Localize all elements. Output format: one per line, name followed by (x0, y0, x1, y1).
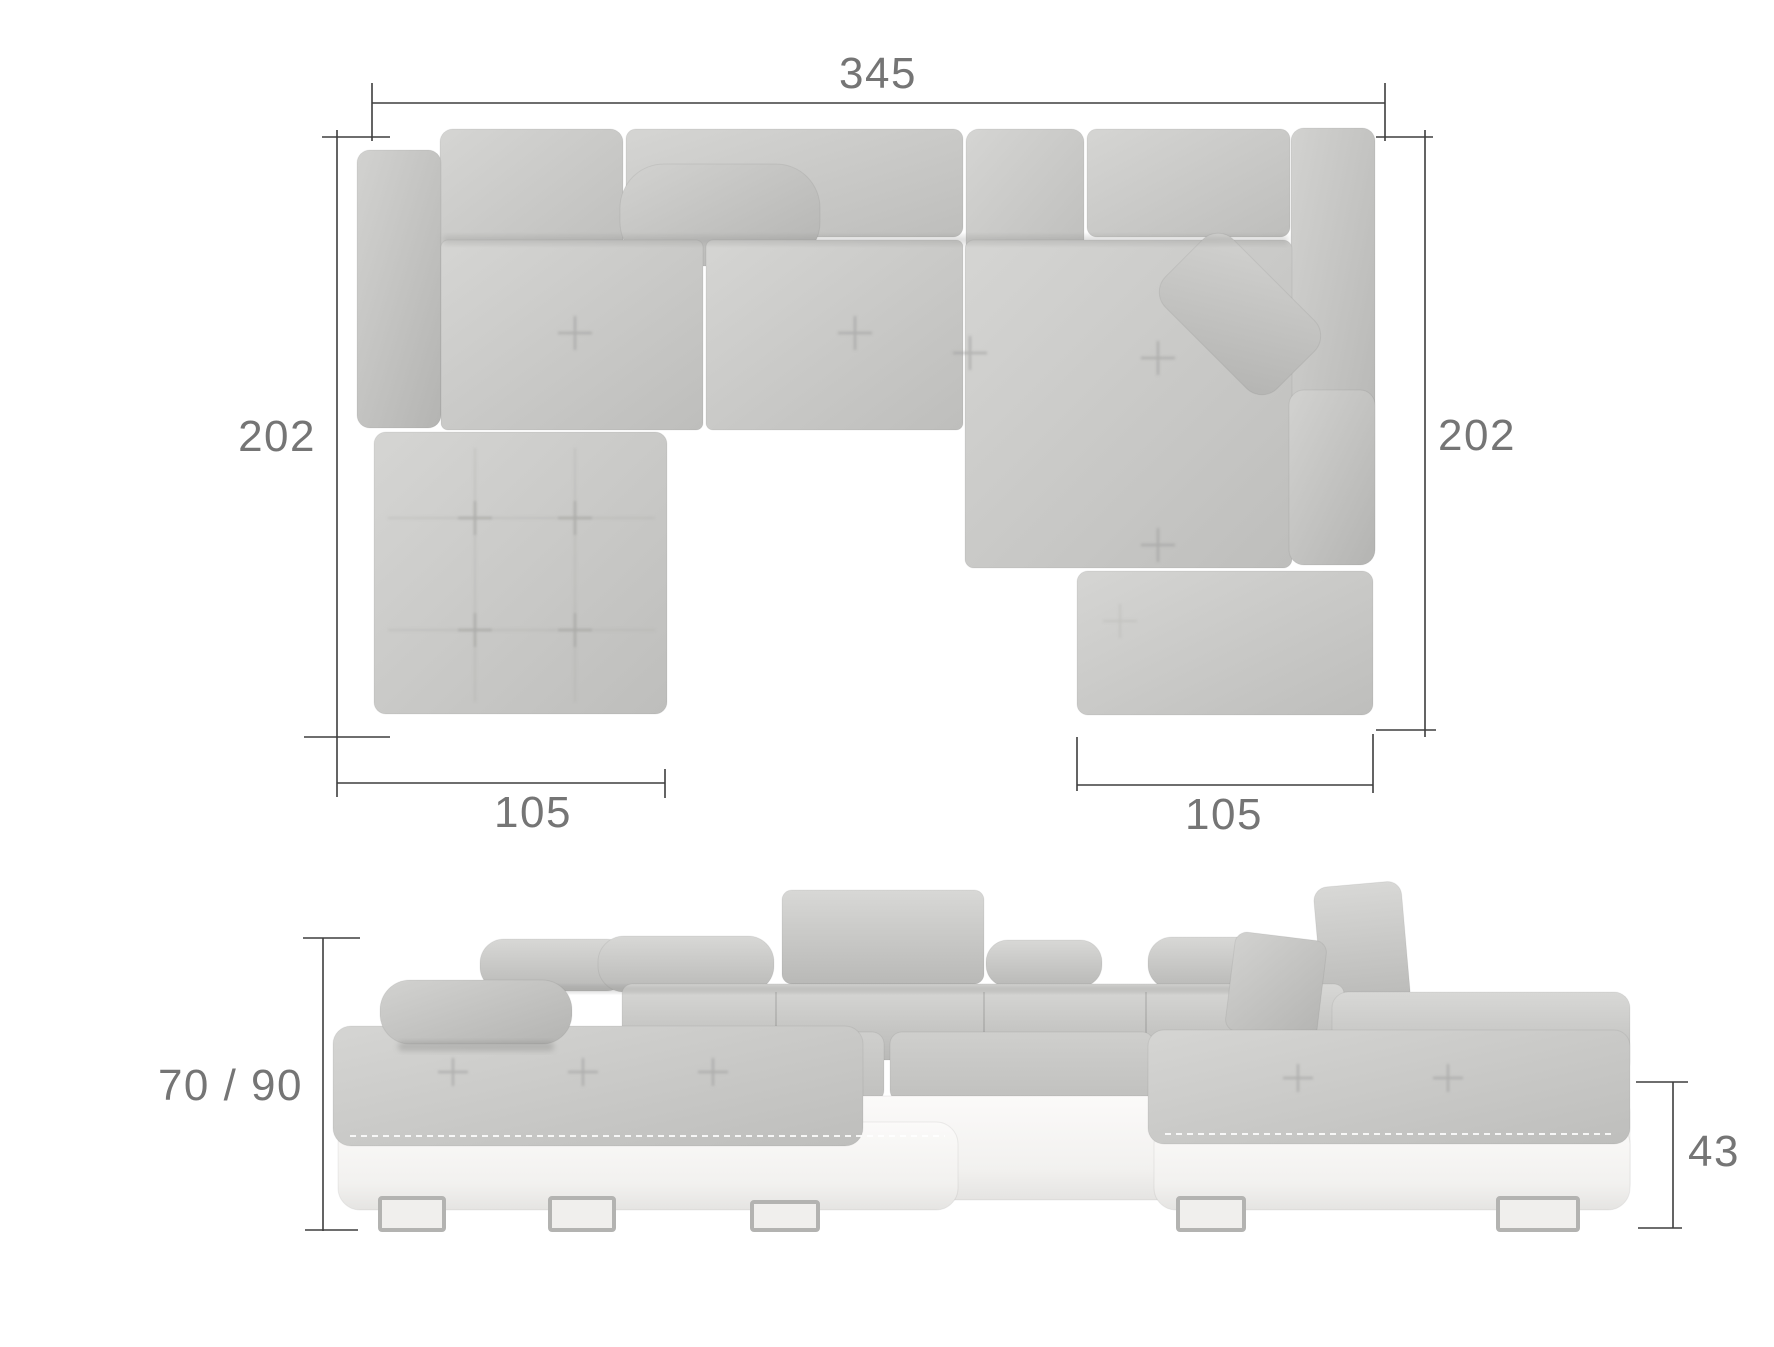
dim-label-right-chaise-width: 105 (1185, 790, 1263, 839)
chrome-leg (380, 1198, 444, 1230)
dim-label-left-depth: 202 (238, 412, 316, 461)
front-armrest-pad-shadow (398, 1042, 554, 1051)
front-left-armrest-pad (380, 980, 572, 1044)
dimension-left-chaise-width: 105 (337, 769, 665, 837)
front-right-chaise-seat (1148, 1030, 1630, 1144)
dim-label-seat-height: 43 (1688, 1127, 1740, 1176)
top-back-shadow (443, 236, 1288, 244)
front-corner-pillow (1224, 931, 1328, 1041)
dimension-overall-height: 70 / 90 (158, 938, 360, 1231)
front-headrest-gap-shadow (490, 986, 1300, 992)
dimension-seat-height: 43 (1636, 1082, 1740, 1228)
dim-label-left-chaise-width: 105 (494, 788, 572, 837)
top-left-chaise (374, 432, 667, 714)
top-seat-module-2 (706, 240, 963, 430)
diagram-canvas: 345 202 202 105 105 70 / 90 43 (0, 0, 1774, 1347)
top-right-chaise (1077, 571, 1373, 715)
front-tall-headrest (782, 890, 984, 984)
top-view (357, 128, 1375, 715)
sofa-dimension-diagram: 345 202 202 105 105 70 / 90 43 (0, 0, 1774, 1347)
dim-line (1636, 1082, 1688, 1228)
dimension-right-depth: 202 (1376, 130, 1516, 737)
dim-line (1376, 130, 1436, 737)
chrome-leg (1498, 1198, 1578, 1230)
dimension-right-chaise-width: 105 (1077, 734, 1373, 839)
dim-label-overall-height: 70 / 90 (158, 1061, 303, 1110)
chrome-leg (1178, 1198, 1244, 1230)
dim-label-total-width: 345 (839, 49, 917, 98)
top-seat-module-1 (441, 240, 703, 430)
dim-line (1077, 734, 1373, 793)
chrome-leg (752, 1202, 818, 1230)
chrome-leg (550, 1198, 614, 1230)
dim-label-right-depth: 202 (1438, 411, 1516, 460)
dimension-total-width: 345 (372, 49, 1385, 141)
front-view (333, 880, 1630, 1230)
top-right-armrest-pad (1289, 390, 1375, 565)
front-center-seat-2 (890, 1032, 1154, 1102)
top-left-armrest (357, 150, 441, 428)
top-back-band-center-right (1087, 129, 1290, 237)
front-headrest-3 (986, 940, 1102, 987)
